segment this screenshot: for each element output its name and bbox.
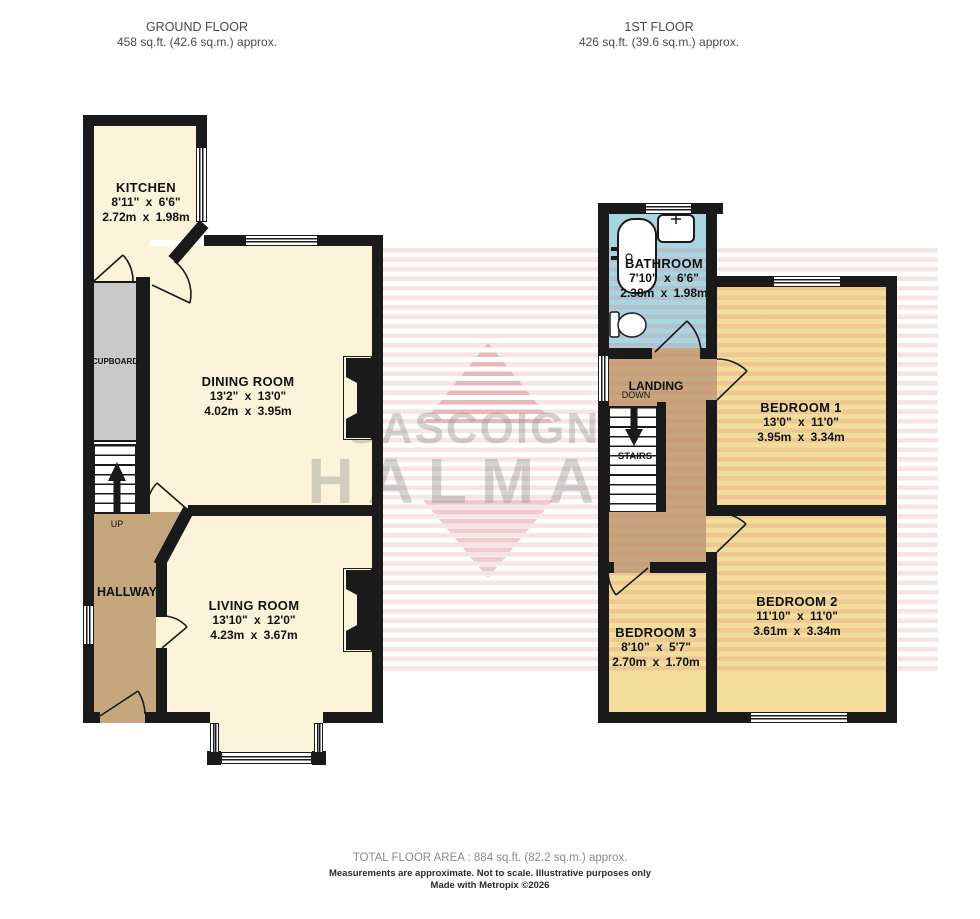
front-door (100, 691, 145, 716)
bedroom3-door (608, 568, 648, 595)
bedroom2-label: BEDROOM 2 11'10" x 11'0" 3.61m x 3.34m (753, 594, 840, 639)
first-floor-title: 1ST FLOOR (579, 20, 739, 34)
kitchen-label: KITCHEN 8'11" x 6'6" 2.72m x 1.98m (102, 180, 189, 225)
bedroom1-label: BEDROOM 1 13'0" x 11'0" 3.95m x 3.34m (757, 400, 844, 445)
bathroom-door (655, 321, 701, 352)
cupboard-label: CUPBOARD (92, 357, 138, 366)
cupboard-door (94, 255, 133, 281)
up-label: UP (111, 519, 124, 529)
floor-plan: GROUND FLOOR 458 sq.ft. (42.6 sq.m.) app… (0, 0, 980, 919)
down-label: DOWN (622, 390, 651, 400)
living-room-label: LIVING ROOM 13'10" x 12'0" 4.23m x 3.67m (209, 598, 300, 643)
bedroom2-door (717, 513, 746, 552)
credit: Made with Metropix ©2026 (0, 880, 980, 891)
toilet-icon (610, 312, 646, 337)
wall-diagonal-hallway (159, 509, 189, 565)
hall-living-door (162, 616, 187, 648)
bathroom-label: BATHROOM 7'10" x 6'6" 2.38m x 1.98m (620, 256, 707, 301)
ground-floor-area: 458 sq.ft. (42.6 sq.m.) approx. (117, 35, 277, 49)
down-arrow-icon (625, 408, 643, 446)
dining-room-label: DINING ROOM 13'2" x 13'0" 4.02m x 3.95m (202, 374, 295, 419)
first-floor-area: 426 sq.ft. (39.6 sq.m.) approx. (579, 35, 739, 49)
up-arrow-icon (108, 462, 126, 512)
plan-overlay (0, 0, 980, 919)
stairs-label: STAIRS (618, 451, 652, 462)
dining-fireplace (346, 358, 371, 438)
footer: TOTAL FLOOR AREA : 884 sq.ft. (82.2 sq.m… (0, 852, 980, 891)
hallway-label: HALLWAY (97, 585, 157, 599)
kitchen-dining-door (152, 261, 191, 303)
ground-floor-title: GROUND FLOOR (117, 20, 277, 34)
first-floor-header: 1ST FLOOR 426 sq.ft. (39.6 sq.m.) approx… (579, 20, 739, 49)
sink-icon (658, 215, 694, 242)
wall-diagonal-kitchen (173, 224, 204, 260)
disclaimer: Measurements are approximate. Not to sca… (0, 868, 980, 879)
bedroom1-door (717, 359, 747, 400)
ground-floor-header: GROUND FLOOR 458 sq.ft. (42.6 sq.m.) app… (117, 20, 277, 49)
bedroom3-label: BEDROOM 3 8'10" x 5'7" 2.70m x 1.70m (612, 625, 699, 670)
living-fireplace (346, 570, 371, 650)
total-floor-area: TOTAL FLOOR AREA : 884 sq.ft. (82.2 sq.m… (0, 852, 980, 864)
hall-dining-door (146, 483, 188, 510)
